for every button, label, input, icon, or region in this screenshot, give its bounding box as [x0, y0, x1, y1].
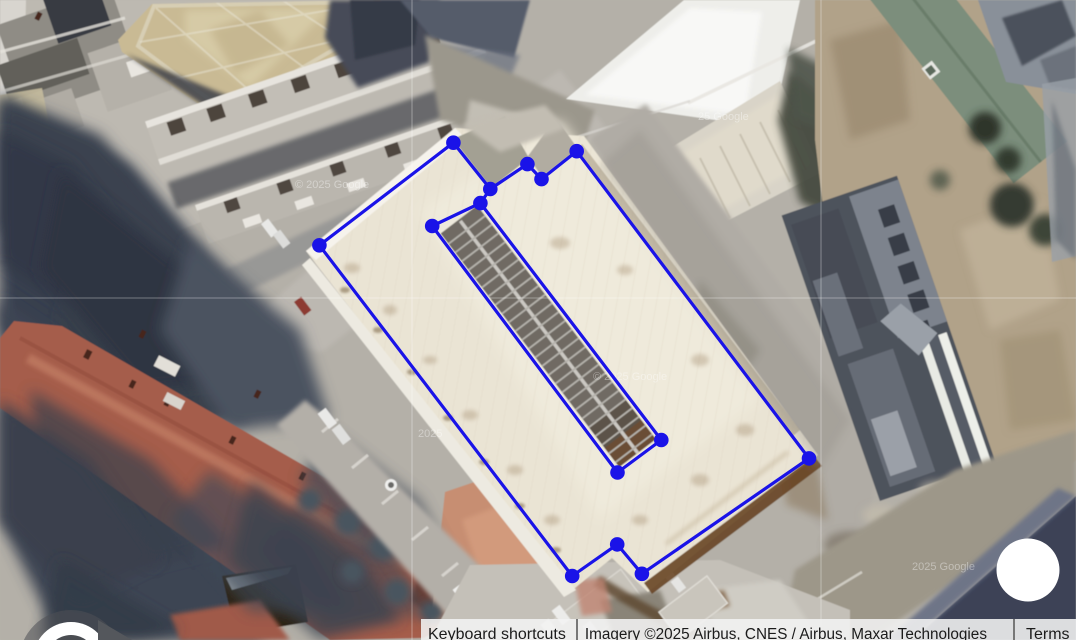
svg-text:© 2025 Google: © 2025 Google	[295, 179, 369, 191]
svg-text:© 2025 Google: © 2025 Google	[593, 371, 667, 383]
svg-text:2025: 2025	[418, 428, 442, 440]
svg-text:25 Google: 25 Google	[698, 111, 749, 123]
svg-text:2025 Google: 2025 Google	[912, 561, 975, 573]
